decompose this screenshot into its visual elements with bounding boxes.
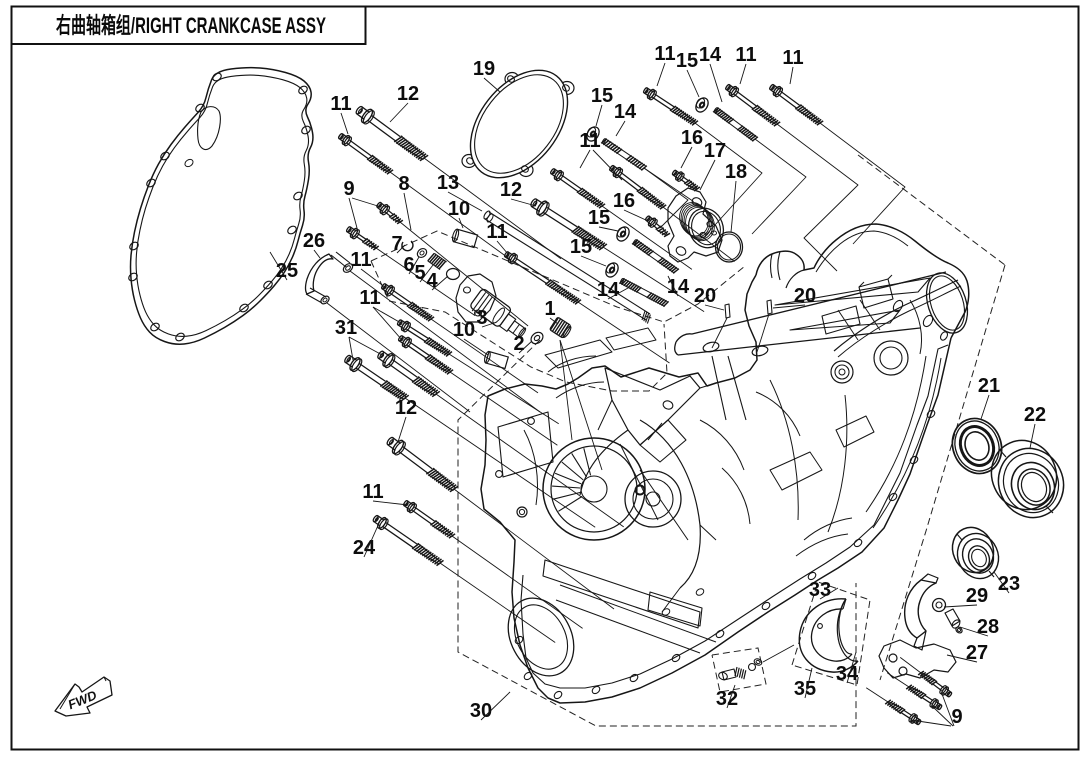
svg-text:22: 22: [1024, 404, 1046, 426]
svg-text:11: 11: [579, 130, 600, 152]
svg-text:8: 8: [398, 173, 409, 195]
svg-text:15: 15: [591, 85, 613, 107]
svg-text:31: 31: [335, 317, 357, 339]
svg-text:17: 17: [704, 140, 726, 162]
svg-text:6: 6: [403, 254, 414, 276]
svg-text:33: 33: [809, 579, 831, 601]
svg-text:20: 20: [694, 285, 716, 307]
svg-text:30: 30: [470, 700, 492, 722]
svg-text:4: 4: [426, 270, 438, 292]
svg-text:16: 16: [613, 190, 635, 212]
svg-text:18: 18: [725, 161, 747, 183]
svg-text:10: 10: [453, 319, 475, 341]
svg-text:16: 16: [681, 127, 703, 149]
svg-text:11: 11: [486, 221, 507, 243]
svg-text:5: 5: [414, 262, 425, 284]
svg-text:13: 13: [437, 172, 459, 194]
svg-text:25: 25: [276, 260, 298, 282]
svg-text:21: 21: [978, 375, 1000, 397]
svg-text:27: 27: [966, 642, 988, 664]
svg-text:11: 11: [350, 249, 371, 271]
svg-text:11: 11: [362, 481, 383, 503]
svg-text:23: 23: [998, 573, 1020, 595]
svg-text:14: 14: [699, 44, 722, 66]
svg-text:9: 9: [343, 178, 354, 200]
svg-text:11: 11: [359, 287, 380, 309]
svg-text:15: 15: [676, 50, 698, 72]
svg-text:2: 2: [513, 333, 524, 355]
svg-text:7: 7: [391, 233, 402, 255]
svg-text:20: 20: [794, 285, 816, 307]
svg-text:11: 11: [654, 43, 675, 65]
svg-text:15: 15: [588, 207, 610, 229]
svg-text:12: 12: [395, 397, 417, 419]
svg-text:右曲轴箱组/RIGHT CRANKCASE ASSY: 右曲轴箱组/RIGHT CRANKCASE ASSY: [56, 13, 326, 38]
svg-text:11: 11: [330, 93, 351, 115]
svg-text:14: 14: [614, 101, 637, 123]
svg-text:14: 14: [597, 279, 620, 301]
svg-text:10: 10: [448, 198, 470, 220]
svg-text:11: 11: [735, 44, 756, 66]
svg-text:28: 28: [977, 616, 999, 638]
svg-text:26: 26: [303, 230, 325, 252]
svg-text:12: 12: [397, 83, 419, 105]
svg-text:11: 11: [782, 47, 803, 69]
svg-text:12: 12: [500, 179, 522, 201]
svg-text:19: 19: [473, 58, 495, 80]
svg-text:29: 29: [966, 585, 988, 607]
svg-text:14: 14: [667, 276, 690, 298]
svg-text:1: 1: [544, 298, 555, 320]
svg-text:15: 15: [570, 236, 592, 258]
